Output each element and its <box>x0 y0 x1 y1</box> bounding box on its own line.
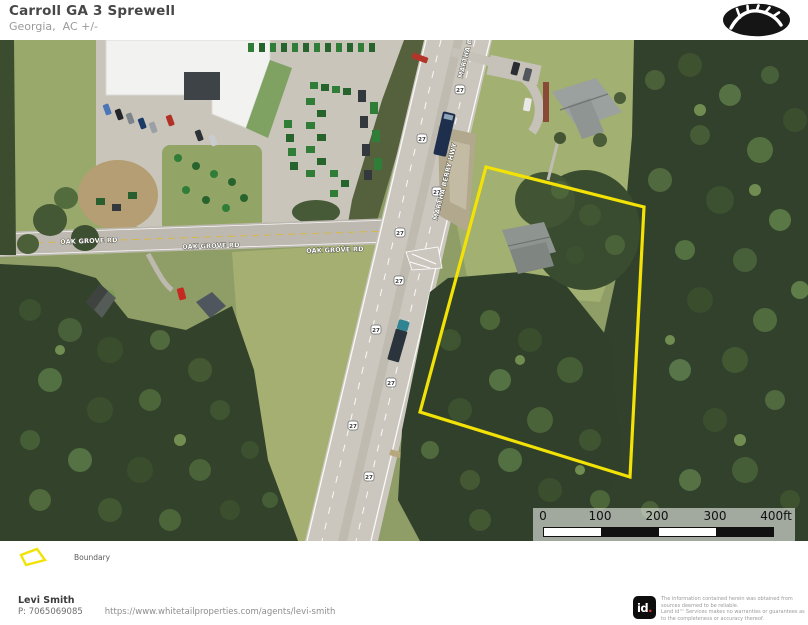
route-shield-label: 27 <box>387 381 395 387</box>
dirt-display-oval <box>78 160 158 230</box>
legend-boundary-row: Boundary <box>18 547 110 567</box>
disclaimer-line-2: Land id™ Services makes no warranties or… <box>661 609 808 622</box>
page-subtitle: Georgia, AC +/- <box>9 20 98 33</box>
agent-phone: P: 7065069085 <box>18 607 83 617</box>
bush <box>614 92 626 104</box>
page-title: Carroll GA 3 Sprewell <box>9 3 175 19</box>
scale-tick: 300 <box>704 509 727 523</box>
route-shield-label: 27 <box>396 231 404 237</box>
scale-tick: 200 <box>646 509 669 523</box>
bush <box>554 132 566 144</box>
route-shield-label: 27 <box>372 328 380 334</box>
map-credit: id. The information contained herein was… <box>633 596 808 622</box>
dealership-dark-roof <box>184 72 220 100</box>
agent-contact-row: P: 7065069085 https://www.whitetailprope… <box>18 607 335 617</box>
scale-tick: 0 <box>539 509 547 523</box>
aerial-map: 27 27 27 27 27 27 27 27 27 OAK GROVE RD … <box>0 40 808 541</box>
scale-bar-segments <box>543 527 774 537</box>
scale-tick: 400ft <box>760 509 792 523</box>
disclaimer-line-1: The information contained herein was obt… <box>661 596 808 609</box>
scale-tick: 100 <box>589 509 612 523</box>
land-id-logo-dot: . <box>648 601 652 615</box>
brick-wall <box>543 82 549 122</box>
disclaimer-text: The information contained herein was obt… <box>661 596 808 622</box>
route-shield-label: 27 <box>456 88 464 94</box>
bush <box>593 133 607 147</box>
header: Carroll GA 3 Sprewell Georgia, AC +/- <box>0 0 808 40</box>
route-shield-label: 27 <box>395 279 403 285</box>
tree-strip-west <box>0 40 16 255</box>
footer: Levi Smith P: 7065069085 https://www.whi… <box>0 590 808 625</box>
scale-bar: 0 100 200 300 400ft <box>533 508 795 541</box>
whitetail-antler-logo-icon <box>722 3 791 37</box>
route-shield-label: 27 <box>365 475 373 481</box>
land-id-logo-text: id <box>637 601 648 615</box>
route-shield-label: 27 <box>349 424 357 430</box>
tree <box>17 234 39 254</box>
land-id-logo: id. <box>633 596 656 619</box>
boundary-legend-icon <box>18 547 48 567</box>
legend-boundary-label: Boundary <box>74 553 110 562</box>
agent-name: Levi Smith <box>18 595 75 606</box>
legend: Boundary <box>0 541 808 581</box>
aerial-imagery: 27 27 27 27 27 27 27 27 27 OAK GROVE RD … <box>0 40 808 541</box>
tree <box>54 187 78 209</box>
route-shield-label: 27 <box>418 137 426 143</box>
tree <box>33 204 67 236</box>
agent-profile-link[interactable]: https://www.whitetailproperties.com/agen… <box>105 607 336 617</box>
